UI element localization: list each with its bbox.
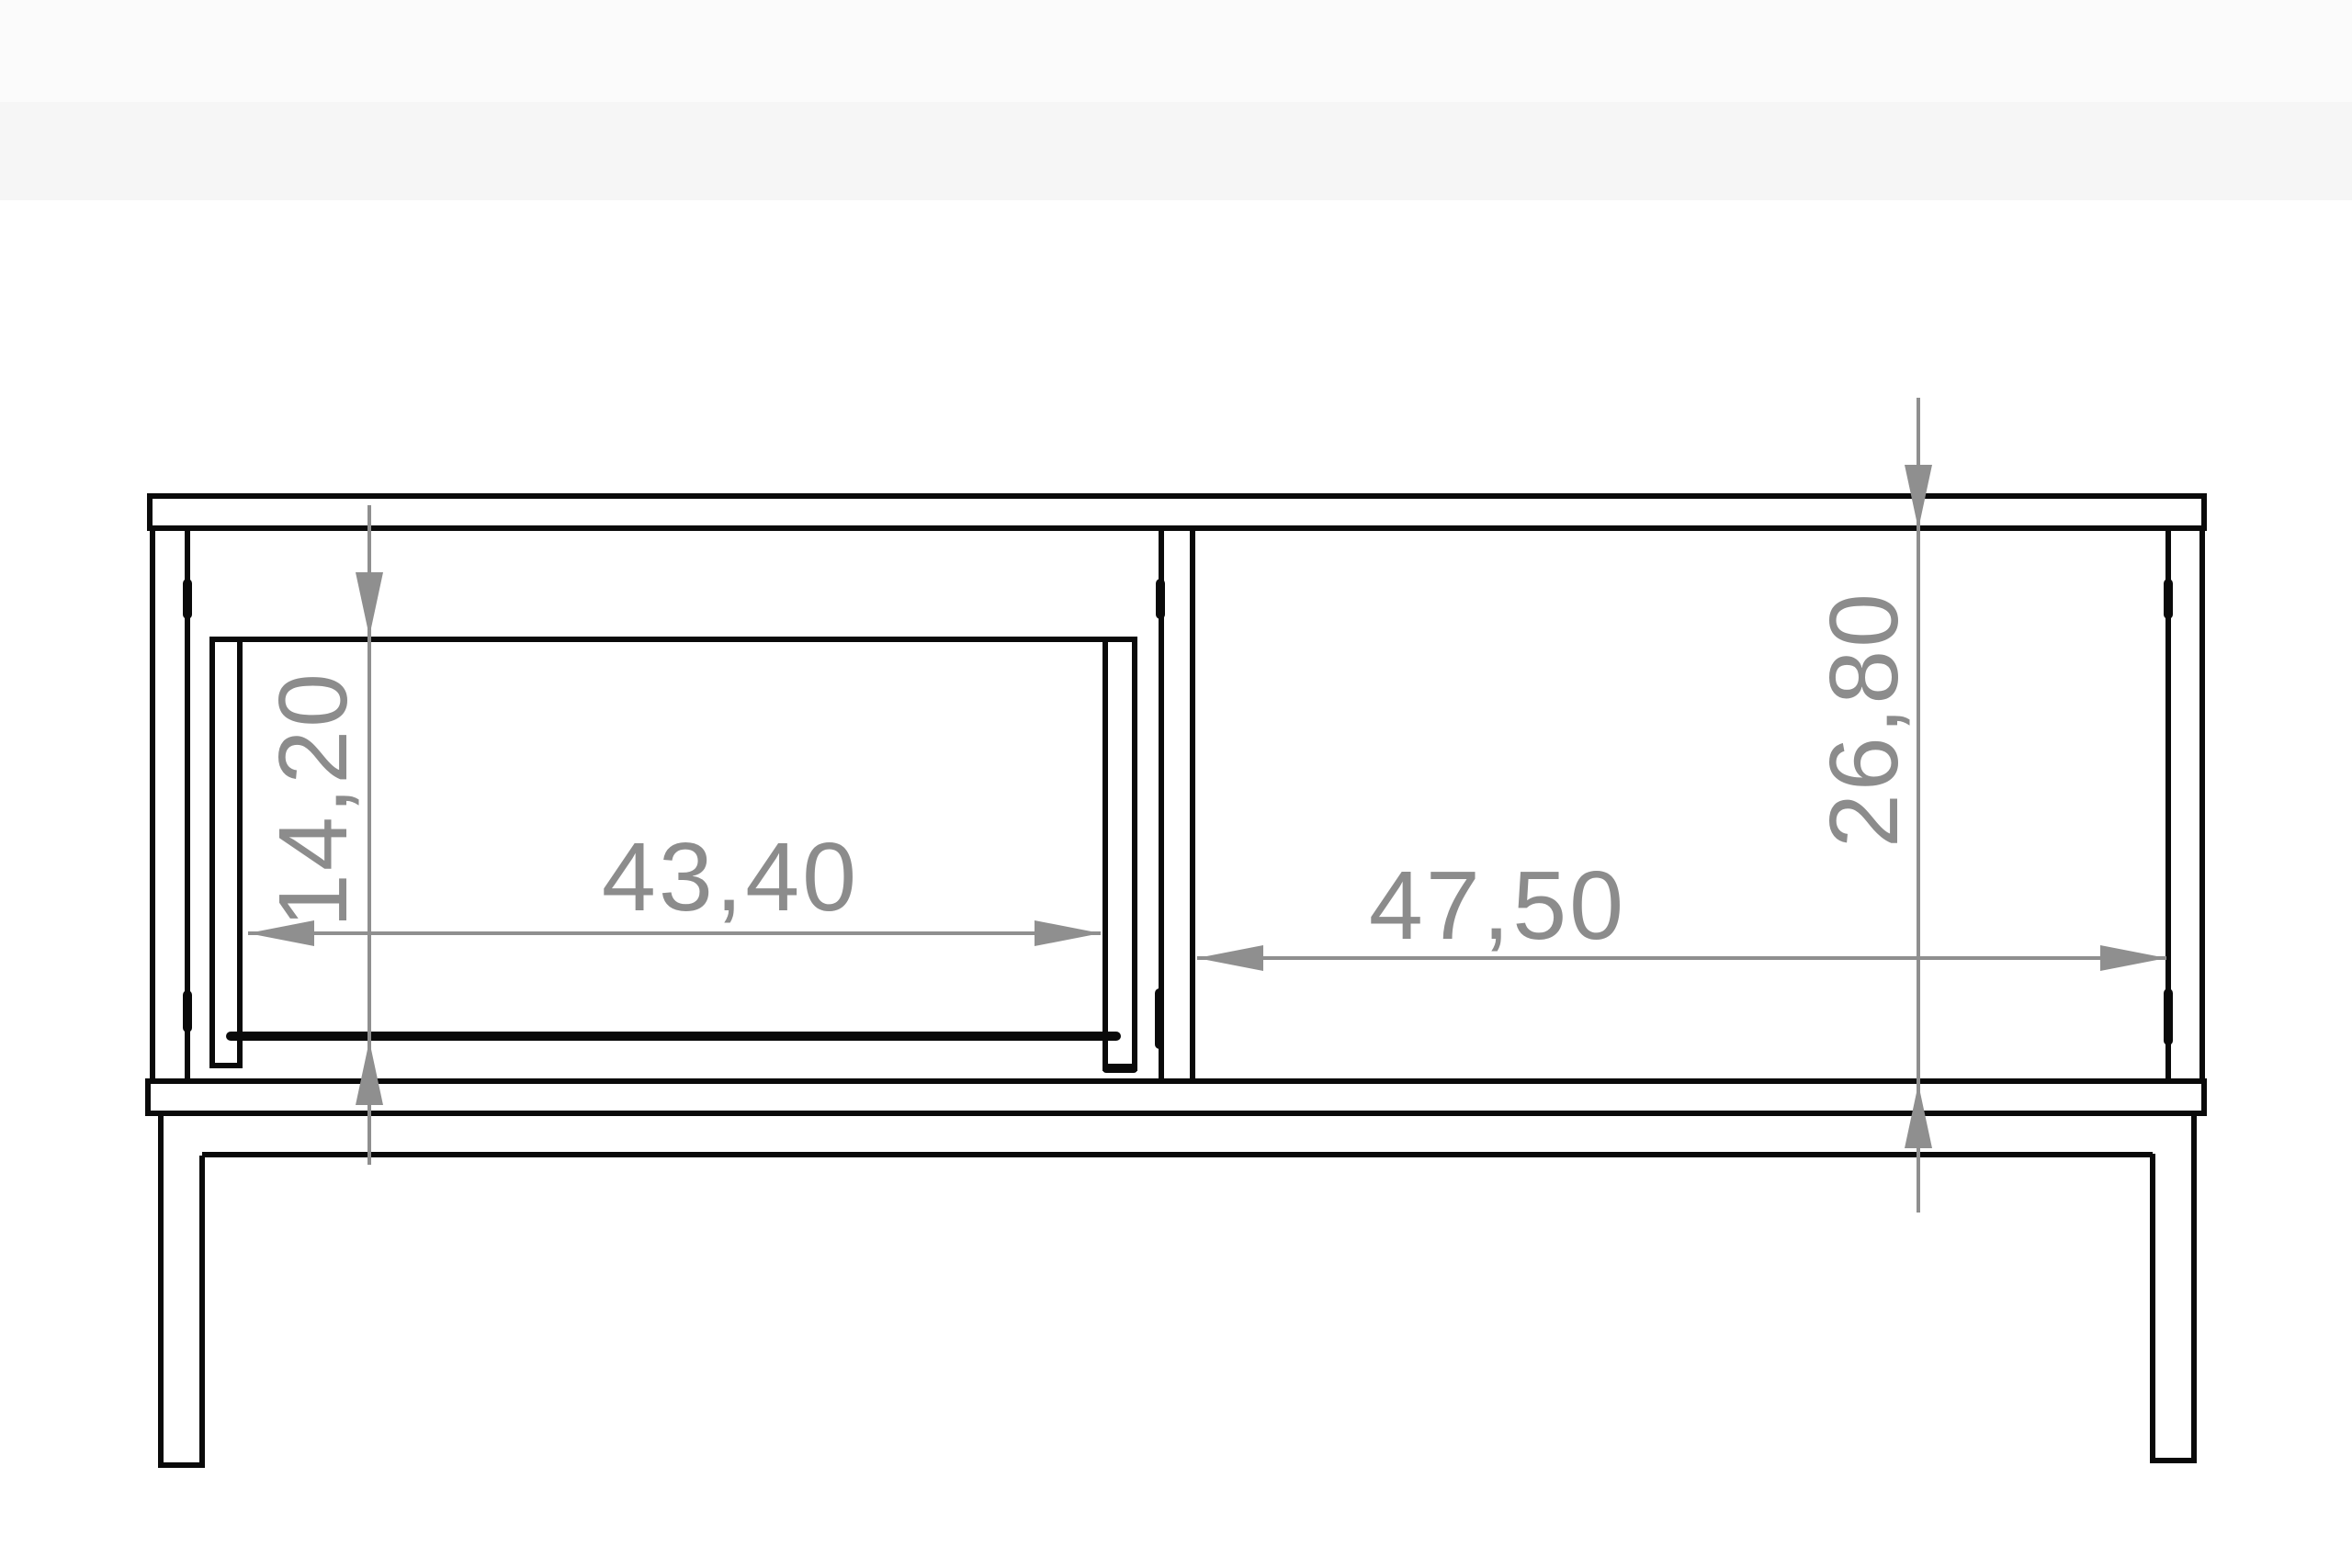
arrowhead-right-icon — [1035, 920, 1101, 946]
drawer-left-rail-inner-line — [237, 637, 243, 1068]
left-panel-top-hinge — [183, 579, 192, 619]
arrowhead-left-icon — [248, 920, 314, 946]
dimension-label-drawer-front-height: 14,20 — [265, 671, 362, 928]
drawer-right-rail-bottom-cap — [1102, 1064, 1137, 1073]
arrowhead-up-icon — [356, 1041, 383, 1105]
right-leg-inner-line — [2150, 1154, 2155, 1463]
background-band — [0, 102, 2352, 200]
left-leg-foot-cap — [158, 1462, 205, 1468]
tabletop-left-edge — [147, 493, 153, 531]
right-leg-foot-cap — [2150, 1458, 2197, 1463]
left-side-panel-outer-line — [150, 531, 155, 1080]
apron-bottom-edge — [202, 1152, 2153, 1157]
tabletop-bottom-edge — [147, 525, 2207, 531]
right-panel-bottom-hinge — [2164, 988, 2173, 1045]
divider-top-hinge — [1156, 579, 1165, 619]
divider-bottom-hinge — [1155, 988, 1164, 1049]
tabletop-top-edge — [147, 493, 2207, 499]
arrowhead-down-icon — [356, 572, 383, 637]
bottom-panel-top-edge — [145, 1078, 2207, 1084]
arrowhead-down-icon — [1905, 465, 1932, 529]
drawer-left-rail-outer-line — [209, 637, 215, 1068]
right-leg-outer-line — [2191, 1116, 2197, 1463]
arrowhead-left-icon — [1197, 945, 1263, 971]
drawer-handle-rail — [226, 1032, 1121, 1041]
background-band-top — [0, 0, 2352, 102]
right-panel-top-hinge — [2164, 579, 2173, 619]
arrowhead-right-icon — [2100, 945, 2166, 971]
left-leg-inner-line — [199, 1156, 205, 1468]
technical-drawing: 14,20 43,40 47,50 26,80 — [0, 0, 2352, 1568]
drawer-right-rail-outer-line — [1132, 637, 1137, 1071]
divider-panel-right-line — [1190, 531, 1195, 1080]
right-side-panel-outer-line — [2199, 531, 2205, 1080]
bottom-panel-right-edge — [2201, 1078, 2207, 1116]
dimension-label-drawer-inner-width: 43,40 — [602, 829, 859, 926]
dimension-label-carcass-inner-height: 26,80 — [1815, 591, 1913, 848]
dimension-label-shelf-inner-width: 47,50 — [1369, 857, 1626, 954]
arrowhead-up-icon — [1905, 1084, 1932, 1148]
left-leg-outer-line — [158, 1116, 164, 1468]
drawer-right-rail-inner-line — [1102, 637, 1108, 1071]
bottom-panel-left-edge — [145, 1078, 151, 1116]
tabletop-right-edge — [2201, 493, 2207, 531]
dimension-line-shelf-inner-width — [1197, 956, 2166, 960]
left-panel-bottom-hinge — [183, 990, 192, 1032]
drawer-left-rail-bottom-cap — [209, 1063, 243, 1068]
dimension-line-drawer-inner-width — [248, 931, 1101, 935]
bottom-panel-bottom-edge — [145, 1111, 2207, 1116]
drawer-front-top-edge — [209, 637, 1137, 642]
